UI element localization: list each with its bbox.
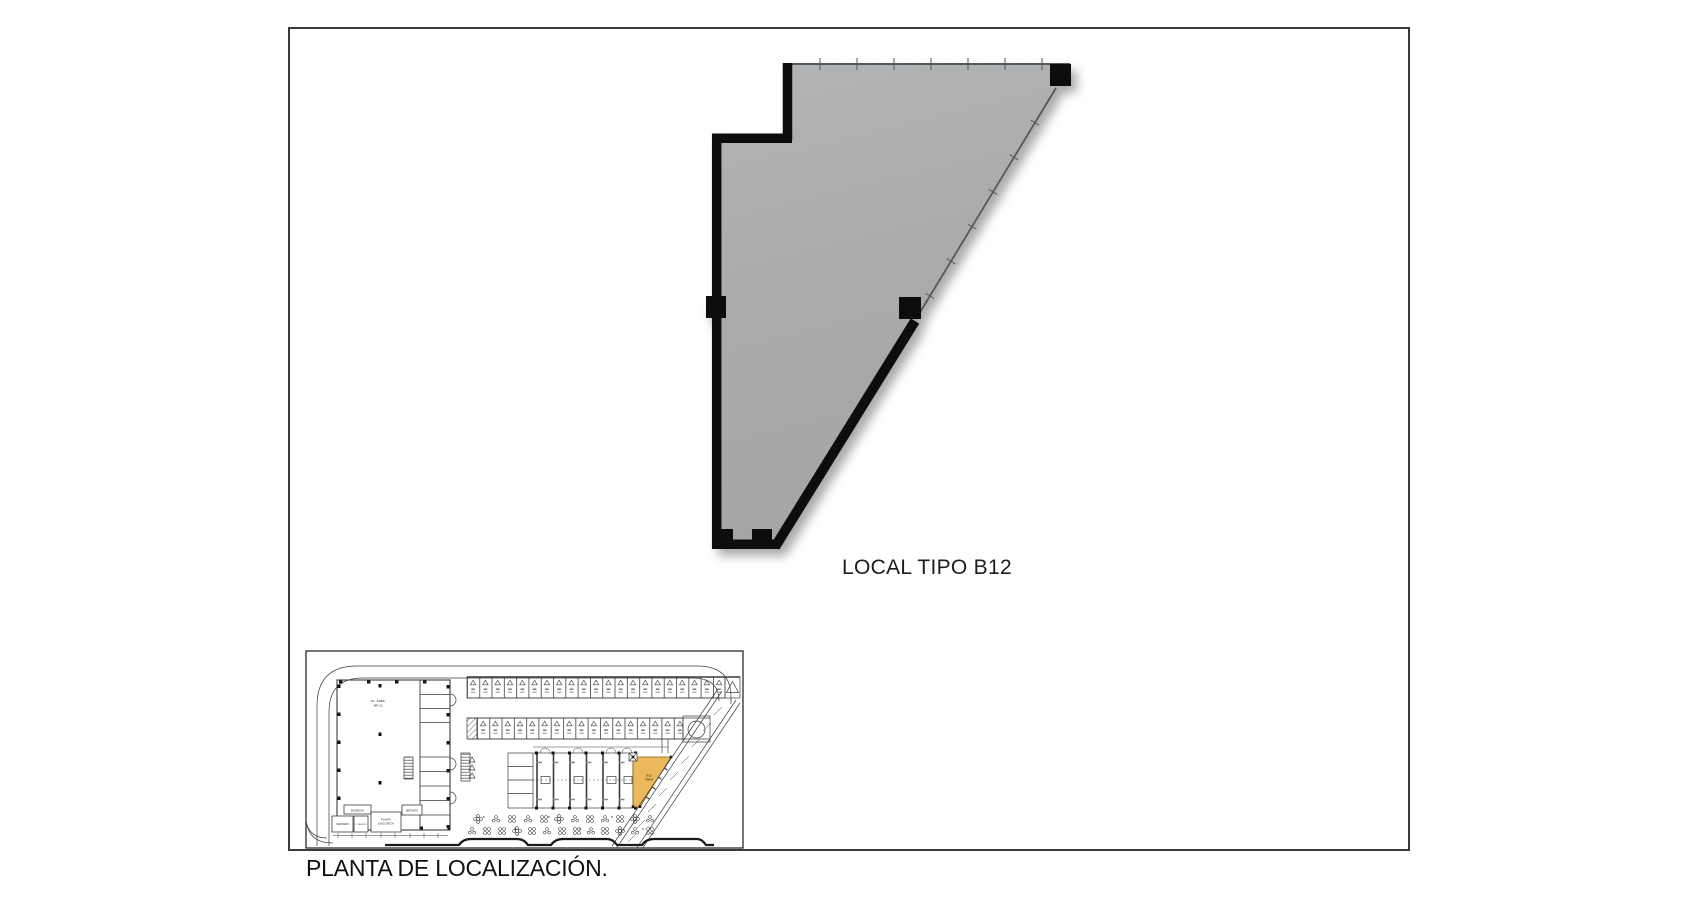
stair-icon — [404, 757, 413, 779]
legend-label: DEPOSITO — [406, 810, 418, 813]
drawing-sheet-page: { "labels": { "local_title": "LOCAL TIPO… — [0, 0, 1701, 900]
legend-label: SANITARIO — [336, 823, 349, 826]
column — [899, 297, 921, 319]
local-b12-floor-plan — [706, 58, 1071, 549]
column — [1050, 64, 1071, 86]
legend-label: C. DE MTS. — [355, 824, 367, 826]
legend-label: PLANTA — [381, 818, 391, 822]
column — [706, 296, 726, 318]
architectural-drawing: PL. ÁREA MP-13 — [0, 0, 1701, 900]
plan-caption: PLANTA DE LOCALIZACIÓN. — [306, 855, 608, 882]
parking-row-top — [467, 677, 740, 698]
legend-label: BODEGAS — [351, 808, 364, 812]
unit-title: LOCAL TIPO B12 — [842, 556, 1012, 580]
building-label-line1: PL. ÁREA — [371, 699, 385, 703]
building-label-line2: MP-13 — [374, 704, 383, 708]
legend-label: DISCOTECA — [378, 822, 393, 826]
column — [752, 529, 772, 547]
column — [717, 529, 733, 547]
unit-label-line2: ÁREA — [645, 778, 653, 782]
location-plan: PL. ÁREA MP-13 — [306, 651, 743, 864]
